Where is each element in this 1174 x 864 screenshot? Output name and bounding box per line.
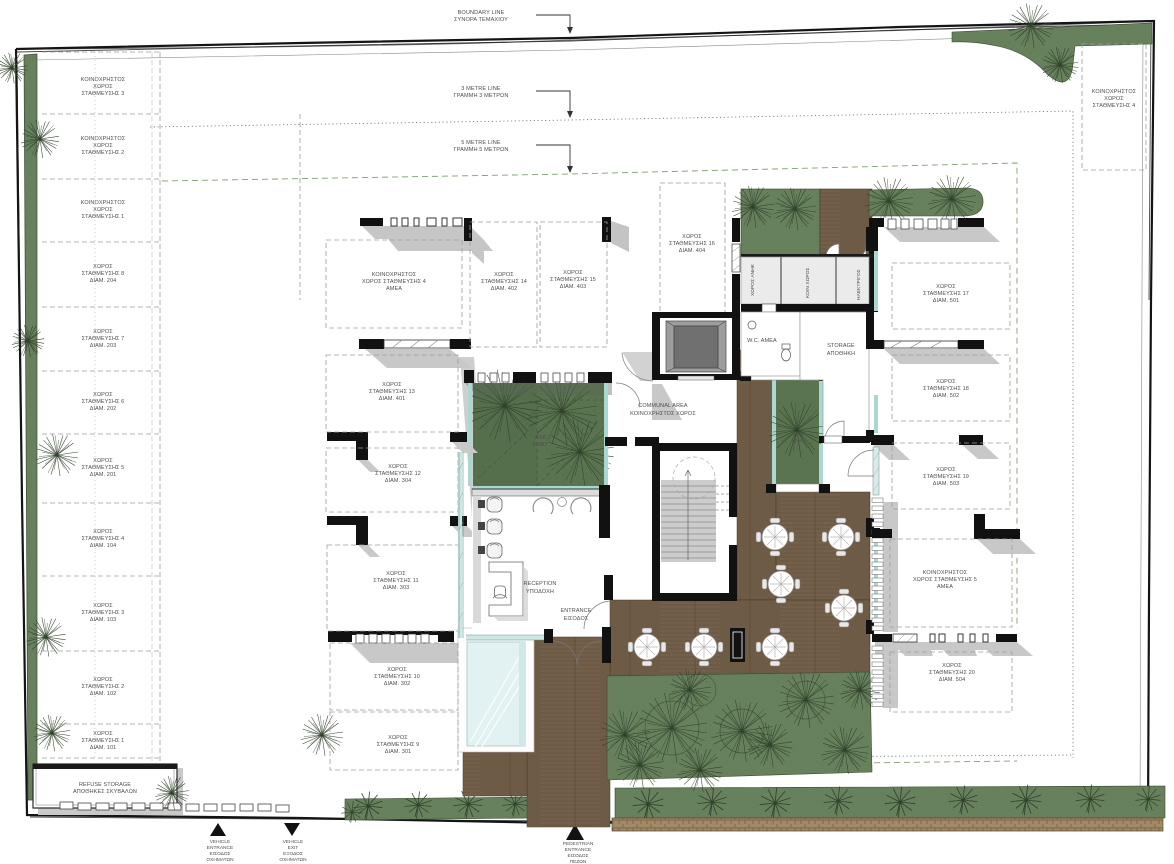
svg-text:ΣΤΑΘΜΕΥΣΗΣ 16: ΣΤΑΘΜΕΥΣΗΣ 16 [669,241,715,247]
svg-text:RECEPTION: RECEPTION [524,581,557,587]
svg-text:ΧΩΡΟΣ: ΧΩΡΟΣ [936,379,956,385]
svg-text:ΧΩΡΟΣ: ΧΩΡΟΣ [93,207,113,213]
svg-text:ΣΤΑΘΜΕΥΣΗΣ 13: ΣΤΑΘΜΕΥΣΗΣ 13 [369,389,415,395]
svg-text:ΣΤΑΘΜΕΥΣΗΣ 9: ΣΤΑΘΜΕΥΣΗΣ 9 [377,742,420,748]
svg-text:ΔΙΑΜ. 301: ΔΙΑΜ. 301 [385,749,412,755]
svg-text:ΧΩΡΟΣ ΑΝΗΚ: ΧΩΡΟΣ ΑΝΗΚ [750,263,756,296]
svg-text:STORAGE: STORAGE [827,343,855,349]
svg-text:ΔΙΑΜ. 503: ΔΙΑΜ. 503 [933,481,960,487]
svg-text:ΣΤΑΘΜΕΥΣΗΣ 18: ΣΤΑΘΜΕΥΣΗΣ 18 [923,386,969,392]
svg-text:ΓΡΑΜΜΗ 5 ΜΕΤΡΩΝ: ΓΡΑΜΜΗ 5 ΜΕΤΡΩΝ [454,147,509,153]
svg-text:ΧΩΡΟΣ: ΧΩΡΟΣ [386,571,406,577]
svg-text:3 METRE LINE: 3 METRE LINE [461,86,501,92]
svg-text:ΧΩΡΟΣ: ΧΩΡΟΣ [93,84,113,90]
svg-text:ΚΟΙΝ ΧΩΡΟΣ: ΚΟΙΝ ΧΩΡΟΣ [805,267,811,298]
svg-text:ΣΤΑΘΜΕΥΣΗΣ 3: ΣΤΑΘΜΕΥΣΗΣ 3 [82,610,125,616]
svg-text:ΧΩΡΟΣ: ΧΩΡΟΣ [93,529,113,535]
svg-text:ΣΤΑΘΜΕΥΣΗΣ 19: ΣΤΑΘΜΕΥΣΗΣ 19 [923,474,969,480]
svg-text:ΧΩΡΟΣ: ΧΩΡΟΣ [936,467,956,473]
svg-text:ΑΠΟΘΗΚΗ: ΑΠΟΘΗΚΗ [827,351,856,357]
svg-text:ΣΤΑΘΜΕΥΣΗΣ 14: ΣΤΑΘΜΕΥΣΗΣ 14 [481,279,527,285]
svg-text:ΣΤΑΘΜΕΥΣΗΣ 1: ΣΤΑΘΜΕΥΣΗΣ 1 [82,738,125,744]
svg-text:VOID: VOID [534,435,547,441]
svg-text:ΟΧΗΜΑΤΩΝ: ΟΧΗΜΑΤΩΝ [206,857,234,863]
svg-text:ΧΩΡΟΣ: ΧΩΡΟΣ [93,677,113,683]
svg-text:BOUNDARY LINE: BOUNDARY LINE [458,10,505,16]
svg-text:ΧΩΡΟΣ: ΧΩΡΟΣ [494,272,514,278]
svg-text:ΣΤΑΘΜΕΥΣΗΣ 15: ΣΤΑΘΜΕΥΣΗΣ 15 [550,277,596,283]
svg-text:ΔΙΑΜ. 101: ΔΙΑΜ. 101 [90,745,117,751]
svg-text:ΚΟΙΝΟΧΡΗΣΤΟΣ: ΚΟΙΝΟΧΡΗΣΤΟΣ [81,136,126,142]
svg-text:ΣΤΑΘΜΕΥΣΗΣ 7: ΣΤΑΘΜΕΥΣΗΣ 7 [82,336,125,342]
svg-text:ΔΙΑΜ. 104: ΔΙΑΜ. 104 [90,543,117,549]
svg-text:ΣΤΑΘΜΕΥΣΗΣ 4: ΣΤΑΘΜΕΥΣΗΣ 4 [82,536,125,542]
svg-text:ΧΩΡΟΣ ΣΤΑΘΜΕΥΣΗΣ 4: ΧΩΡΟΣ ΣΤΑΘΜΕΥΣΗΣ 4 [362,279,426,285]
svg-text:ΣΥΝΟΡΑ ΤΕΜΑΧΙΟΥ: ΣΥΝΟΡΑ ΤΕΜΑΧΙΟΥ [454,17,508,23]
svg-text:W.C. AMEA: W.C. AMEA [747,338,777,344]
svg-text:ΧΩΡΟΣ: ΧΩΡΟΣ [93,731,113,737]
svg-text:ΔΙΑΜ. 404: ΔΙΑΜ. 404 [679,248,706,254]
svg-text:ΔΙΑΜ. 501: ΔΙΑΜ. 501 [933,298,960,304]
svg-text:ΚΟΙΝΟΧΡΗΣΤΟΣ: ΚΟΙΝΟΧΡΗΣΤΟΣ [923,570,968,576]
svg-text:ΧΩΡΟΣ ΣΤΑΘΜΕΥΣΗΣ 5: ΧΩΡΟΣ ΣΤΑΘΜΕΥΣΗΣ 5 [913,577,977,583]
svg-text:ΔΙΑΜ. 502: ΔΙΑΜ. 502 [933,393,960,399]
svg-text:ΧΩΡΟΣ: ΧΩΡΟΣ [93,329,113,335]
svg-text:ΟΧΗΜΑΤΩΝ: ΟΧΗΜΑΤΩΝ [279,857,307,863]
svg-text:ΧΩΡΟΣ: ΧΩΡΟΣ [936,284,956,290]
svg-text:ΣΤΑΘΜΕΥΣΗΣ 3: ΣΤΑΘΜΕΥΣΗΣ 3 [82,91,125,97]
svg-text:ΔΙΑΜ. 302: ΔΙΑΜ. 302 [384,681,411,687]
svg-text:ΣΤΑΘΜΕΥΣΗΣ 4: ΣΤΑΘΜΕΥΣΗΣ 4 [1093,103,1136,109]
svg-text:ΕΙΣΟΔΟΣ: ΕΙΣΟΔΟΣ [210,851,231,857]
svg-text:VEHICLE: VEHICLE [283,839,304,845]
svg-text:ΑΜΕΑ: ΑΜΕΑ [386,286,402,292]
svg-text:ΣΤΑΘΜΕΥΣΗΣ 20: ΣΤΑΘΜΕΥΣΗΣ 20 [929,670,975,676]
svg-text:ΣΤΑΘΜΕΥΣΗΣ 17: ΣΤΑΘΜΕΥΣΗΣ 17 [923,291,969,297]
svg-text:ΑΠΟΘΗΚΕΣ ΣΚΥΒΑΛΩΝ: ΑΠΟΘΗΚΕΣ ΣΚΥΒΑΛΩΝ [73,789,137,795]
svg-text:ΑΜΕΑ: ΑΜΕΑ [937,584,953,590]
svg-text:COMMUNAL AREA: COMMUNAL AREA [638,403,688,409]
svg-text:ΠΕΖΩΝ: ΠΕΖΩΝ [570,859,587,864]
svg-text:ΔΙΑΜ. 201: ΔΙΑΜ. 201 [90,472,117,478]
svg-text:ΣΤΑΘΜΕΥΣΗΣ 5: ΣΤΑΘΜΕΥΣΗΣ 5 [82,465,125,471]
svg-text:ΕΙΣΟΔΟΣ: ΕΙΣΟΔΟΣ [568,853,589,859]
svg-text:ΔΙΑΜ. 102: ΔΙΑΜ. 102 [90,691,117,697]
svg-text:ΧΩΡΟΣ: ΧΩΡΟΣ [93,603,113,609]
svg-text:ΚΟΙΝΟΧΡΗΣΤΟΣ: ΚΟΙΝΟΧΡΗΣΤΟΣ [372,272,417,278]
svg-text:ΧΩΡΟΣ: ΧΩΡΟΣ [563,270,583,276]
svg-text:ΧΩΡΟΣ: ΧΩΡΟΣ [388,464,408,470]
svg-text:ΕΞΟΔΟΣ: ΕΞΟΔΟΣ [283,851,303,857]
svg-text:ΣΤΑΘΜΕΥΣΗΣ 1: ΣΤΑΘΜΕΥΣΗΣ 1 [82,214,125,220]
svg-text:PEDESTRIAN: PEDESTRIAN [563,841,594,847]
svg-text:ΗΛΕΚΤΡΙΓΟΣ: ΗΛΕΚΤΡΙΓΟΣ [856,269,862,300]
svg-text:ΧΩΡΟΣ: ΧΩΡΟΣ [682,234,702,240]
svg-text:ΣΤΑΘΜΕΥΣΗΣ 8: ΣΤΑΘΜΕΥΣΗΣ 8 [82,271,125,277]
svg-text:ΚΕΝΟ: ΚΕΝΟ [792,438,805,443]
svg-text:ΚΟΙΝΟΧΡΗΣΤΟΣ ΧΩΡΟΣ: ΚΟΙΝΟΧΡΗΣΤΟΣ ΧΩΡΟΣ [630,411,696,417]
svg-text:ΣΤΑΘΜΕΥΣΗΣ 2: ΣΤΑΘΜΕΥΣΗΣ 2 [82,150,125,156]
svg-text:VOID: VOID [793,432,803,437]
svg-text:ΔΙΑΜ. 304: ΔΙΑΜ. 304 [385,478,412,484]
svg-text:ΔΙΑΜ. 403: ΔΙΑΜ. 403 [560,284,587,290]
svg-text:ΣΤΑΘΜΕΥΣΗΣ 2: ΣΤΑΘΜΕΥΣΗΣ 2 [82,684,125,690]
svg-text:ΧΩΡΟΣ: ΧΩΡΟΣ [387,667,407,673]
svg-text:ΧΩΡΟΣ: ΧΩΡΟΣ [388,735,408,741]
svg-text:ΧΩΡΟΣ: ΧΩΡΟΣ [93,264,113,270]
svg-text:ΔΙΑΜ. 401: ΔΙΑΜ. 401 [379,396,406,402]
svg-text:ΧΩΡΟΣ: ΧΩΡΟΣ [93,458,113,464]
svg-text:ΧΩΡΟΣ: ΧΩΡΟΣ [93,392,113,398]
svg-text:ΣΤΑΘΜΕΥΣΗΣ 10: ΣΤΑΘΜΕΥΣΗΣ 10 [374,674,420,680]
svg-text:ΥΠΟΔΟΧΗ: ΥΠΟΔΟΧΗ [526,589,554,595]
svg-text:ΚΟΙΝΟΧΡΗΣΤΟΣ: ΚΟΙΝΟΧΡΗΣΤΟΣ [1092,89,1137,95]
svg-text:ΔΙΑΜ. 202: ΔΙΑΜ. 202 [90,406,117,412]
svg-text:ENTRANCE: ENTRANCE [565,847,591,853]
svg-text:REFUSE STORAGE: REFUSE STORAGE [79,782,131,788]
svg-text:ΔΙΑΜ. 504: ΔΙΑΜ. 504 [939,677,966,683]
svg-text:ΧΩΡΟΣ: ΧΩΡΟΣ [93,143,113,149]
svg-text:ΚΟΙΝΟΧΡΗΣΤΟΣ: ΚΟΙΝΟΧΡΗΣΤΟΣ [81,77,126,83]
svg-text:ΓΡΑΜΜΗ 3 ΜΕΤΡΩΝ: ΓΡΑΜΜΗ 3 ΜΕΤΡΩΝ [454,93,509,99]
svg-text:ΔΙΑΜ. 402: ΔΙΑΜ. 402 [491,286,518,292]
svg-text:ΔΙΑΜ. 103: ΔΙΑΜ. 103 [90,617,117,623]
svg-text:ΣΤΑΘΜΕΥΣΗΣ 12: ΣΤΑΘΜΕΥΣΗΣ 12 [375,471,421,477]
svg-text:ΣΤΑΘΜΕΥΣΗΣ 11: ΣΤΑΘΜΕΥΣΗΣ 11 [373,578,418,584]
svg-text:ΧΩΡΟΣ: ΧΩΡΟΣ [1104,96,1124,102]
svg-text:ENTRANCE: ENTRANCE [560,608,591,614]
svg-text:ΣΤΑΘΜΕΥΣΗΣ 6: ΣΤΑΘΜΕΥΣΗΣ 6 [82,399,125,405]
svg-text:ENTRANCE: ENTRANCE [207,845,233,851]
svg-text:ΧΩΡΟΣ: ΧΩΡΟΣ [382,382,402,388]
svg-text:ΔΙΑΜ. 203: ΔΙΑΜ. 203 [90,343,117,349]
svg-text:ΧΩΡΟΣ: ΧΩΡΟΣ [942,663,962,669]
svg-text:5 METRE LINE: 5 METRE LINE [461,140,501,146]
svg-text:EXIT: EXIT [288,845,299,851]
svg-text:ΚΟΙΝΟΧΡΗΣΤΟΣ: ΚΟΙΝΟΧΡΗΣΤΟΣ [81,200,126,206]
svg-text:ΚΕΝΟ: ΚΕΝΟ [533,442,547,448]
svg-text:VEHICLE: VEHICLE [210,839,231,845]
svg-text:ΔΙΑΜ. 303: ΔΙΑΜ. 303 [383,585,410,591]
svg-text:ΔΙΑΜ. 204: ΔΙΑΜ. 204 [90,278,117,284]
